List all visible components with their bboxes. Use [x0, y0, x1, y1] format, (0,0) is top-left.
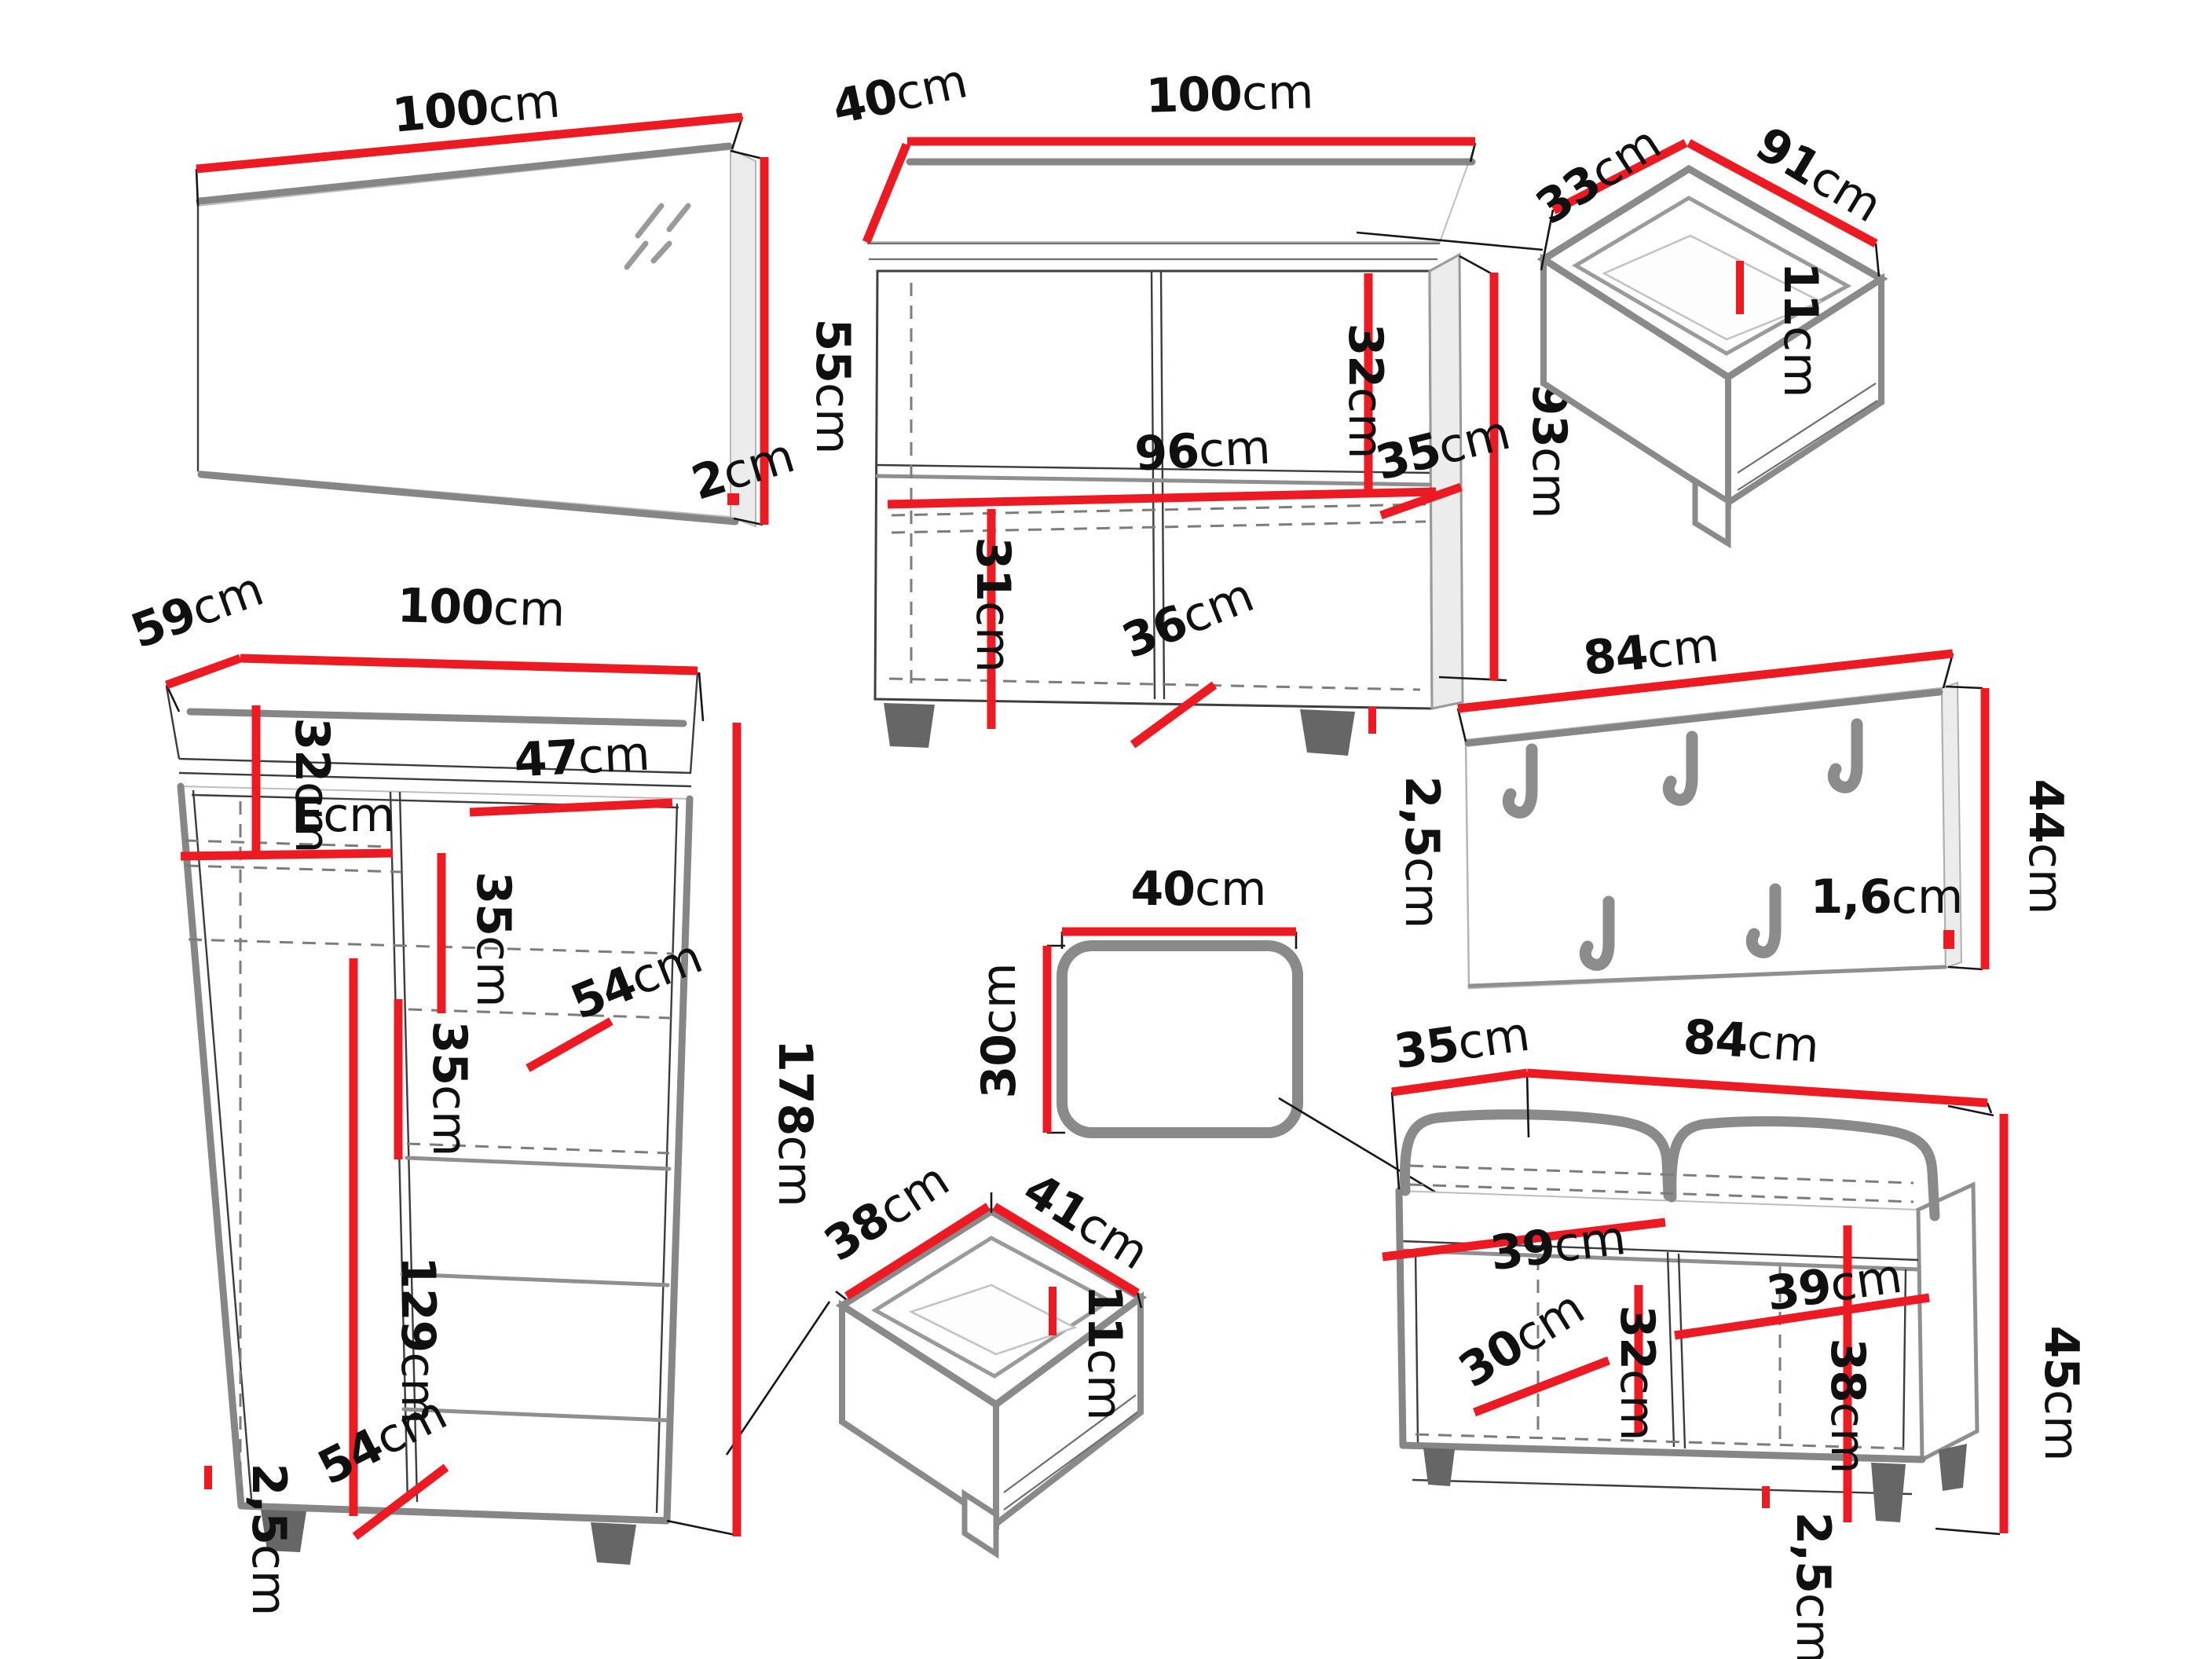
dim-line-wardrobe-left-shelf — [181, 853, 393, 856]
coat-rack-thickness-label: 1,6cm — [1811, 870, 1964, 925]
cushion-shape — [1062, 946, 1298, 1133]
coat-rack-side-thickness — [1942, 683, 1961, 968]
tick — [667, 1521, 735, 1535]
cushion-width-label: 40cm — [1131, 862, 1267, 917]
tick — [1935, 1529, 2000, 1534]
cushion-height-label: 30cm — [972, 963, 1027, 1099]
coat-rack-height-label: 44cm — [2018, 779, 2073, 915]
tick — [1459, 256, 1492, 274]
wardrobe-left-shelf-label: Ecm — [291, 788, 394, 843]
drawer-small-height-label: 11cm — [1077, 1285, 1132, 1421]
wardrobe: 59cm 100cm 32cm Ecm 47cm 35cm 54cm 35cm … — [124, 562, 829, 1617]
wardrobe-plinth-label: 2,5cm — [241, 1463, 296, 1617]
wardrobe-width-label: 100cm — [397, 578, 566, 638]
coat-rack: 84cm 44cm 1,6cm — [1458, 617, 2073, 988]
tick — [1392, 1092, 1399, 1189]
diagram-canvas: 100cm 55cm 2cm — [0, 0, 2212, 1659]
sideboard-right-side — [1430, 255, 1463, 709]
bench-foot-left — [1423, 1448, 1455, 1486]
tick — [1987, 1103, 1991, 1113]
bench-opening-height-label: 38cm — [1820, 1339, 1875, 1474]
cushion: 40cm 30cm — [972, 862, 1444, 1197]
bench-plinth — [1412, 1480, 1912, 1494]
sideboard-foot-right — [1300, 709, 1355, 756]
wardrobe-right-shelf-label: 47cm — [513, 727, 651, 789]
bench-left-edge — [1399, 1191, 1403, 1445]
bench-foot-right — [1871, 1463, 1906, 1522]
bench-inner-height-label: 32cm — [1610, 1306, 1664, 1441]
tick — [836, 1291, 846, 1299]
tick — [1876, 244, 1879, 276]
tick — [699, 672, 703, 721]
bench-width-label: 84cm — [1682, 1009, 1821, 1074]
pointer-to-bench — [1279, 1098, 1444, 1197]
bench-plinth-label: 2,5cm — [1785, 1512, 1840, 1659]
tick — [1948, 967, 1983, 969]
dim-line-wardrobe-depth — [167, 658, 240, 685]
sideboard-plinth-label: 2,5cm — [1394, 776, 1449, 929]
tick — [1458, 709, 1466, 742]
dim-mark-coat-rack-thickness — [1943, 930, 1954, 949]
mirror-height-label: 55cm — [805, 319, 860, 455]
bench-right-side — [1918, 1185, 1977, 1459]
bench-height-label: 45cm — [2034, 1326, 2089, 1462]
bench: 35cm 84cm 39cm 39cm 38cm 32cm 30cm 2,5cm… — [1382, 1007, 2089, 1659]
dim-line-wardrobe-width — [240, 658, 698, 671]
sideboard-depth-label: 40cm — [828, 53, 972, 135]
mirror: 100cm 55cm 2cm — [196, 73, 860, 526]
drawer-large: 33cm 91cm 11cm — [1527, 115, 1892, 544]
tick — [1948, 1106, 1994, 1115]
sideboard: 40cm 100cm 32cm 96cm 35cm 31cm 36cm 93cm… — [828, 53, 1577, 928]
furniture-dimensions-diagram: 100cm 55cm 2cm — [0, 0, 2212, 1659]
drawer-large-height-label: 11cm — [1773, 262, 1828, 398]
pointer-to-small-drawer — [727, 1302, 829, 1455]
sideboard-height-label: 93cm — [1522, 383, 1577, 519]
wardrobe-gap-lower-label: 35cm — [422, 1021, 477, 1157]
wardrobe-gap-upper-label: 35cm — [466, 872, 521, 1008]
sideboard-foot-left — [884, 703, 935, 748]
mirror-face — [198, 149, 731, 517]
wardrobe-depth-label: 59cm — [124, 562, 270, 660]
bench-foot-side — [1939, 1444, 1967, 1491]
wardrobe-foot-right — [591, 1522, 636, 1565]
bench-cushion-left — [1404, 1115, 1668, 1196]
drawer-small: 38cm 41cm 11cm — [815, 1152, 1159, 1554]
sideboard-inner-width-label: 96cm — [1133, 420, 1272, 482]
tick — [1527, 1073, 1529, 1137]
dim-line-bench-width — [1527, 1073, 1987, 1103]
sideboard-lower-label: 31cm — [965, 537, 1020, 673]
sideboard-width-label: 100cm — [1145, 64, 1314, 124]
wardrobe-height-label: 178cm — [767, 1039, 822, 1207]
coat-rack-width-label: 84cm — [1580, 617, 1721, 687]
bench-depth-label: 35cm — [1391, 1007, 1533, 1080]
